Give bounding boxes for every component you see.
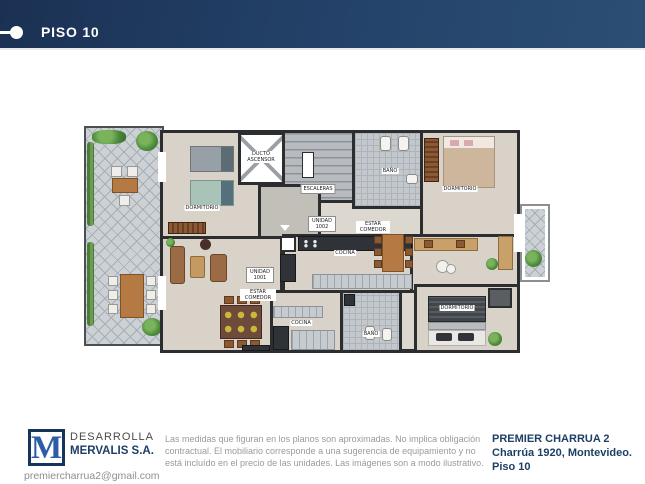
- terrace-chair: [111, 166, 122, 177]
- pillow: [464, 140, 473, 146]
- header-bar: PISO 10: [0, 0, 645, 50]
- terrace-chair: [146, 304, 156, 314]
- developer-name: DESARROLLA MERVALIS S.A.: [70, 431, 154, 457]
- bed-single: [190, 180, 234, 206]
- balcony: [520, 204, 550, 282]
- header-dot-icon: [10, 26, 23, 39]
- property-address: Charrúa 1920, Montevideo.: [492, 446, 632, 460]
- kitchen-counter: [273, 306, 323, 318]
- plant: [92, 130, 126, 144]
- pillow: [458, 333, 474, 341]
- sofa: [210, 254, 227, 282]
- label-ducto-ascensor: DUCTO ASCENSOR: [244, 151, 278, 163]
- stove-burners: [302, 239, 320, 248]
- label-dormitorio-1002: DORMITORIO: [185, 205, 220, 211]
- kitchen-island: [312, 274, 412, 289]
- terrace-table-small: [112, 178, 138, 193]
- armchair: [190, 256, 205, 278]
- terrace-chair: [108, 290, 118, 300]
- entry-arrow: [280, 225, 290, 231]
- chair: [405, 236, 413, 244]
- terrace-chair: [146, 276, 156, 286]
- chair: [224, 296, 234, 304]
- sofa: [170, 246, 185, 284]
- terrace-door-opening: [158, 276, 166, 310]
- label-unidad-1002: UNIDAD 1002: [308, 216, 336, 232]
- developer-line2: MERVALIS S.A.: [70, 445, 154, 457]
- desk-item: [456, 240, 465, 248]
- coffee-table: [200, 239, 211, 250]
- label-bano-bottom: BAÑO: [363, 331, 380, 337]
- plant: [488, 332, 502, 346]
- stove: [273, 326, 289, 350]
- chair: [374, 236, 382, 244]
- hedge: [87, 242, 94, 326]
- terrace-chair: [108, 276, 118, 286]
- plant: [486, 258, 498, 270]
- chair: [405, 260, 413, 268]
- page: PISO 10: [0, 0, 645, 484]
- label-dormitorio-top-right: DORMITORIO: [443, 186, 478, 192]
- cabinet: [498, 236, 513, 270]
- plant: [136, 131, 158, 151]
- hedge: [87, 142, 94, 226]
- pillow: [450, 140, 459, 146]
- footer: M DESARROLLA MERVALIS S.A. premiercharru…: [0, 415, 645, 484]
- fridge: [280, 254, 296, 282]
- terrace-chair: [127, 166, 138, 177]
- floor-plan: DORMITORIO DUCTO ASCENSOR ESCALERAS BAÑO…: [84, 126, 550, 354]
- chair: [405, 248, 413, 256]
- bidet: [382, 328, 392, 341]
- terrace-door-opening: [158, 152, 166, 182]
- tv-cabinet: [242, 345, 270, 351]
- label-estar-comedor-1002: ESTAR COMEDOR: [356, 221, 390, 233]
- property-name: PREMIER CHARRUA 2: [492, 432, 632, 446]
- round-stool: [446, 264, 456, 274]
- label-bano-top: BAÑO: [382, 168, 399, 174]
- plant: [142, 318, 162, 336]
- stairs-landing: [302, 152, 314, 178]
- label-cocina-1002: COCINA: [334, 250, 356, 256]
- dining-table-1001: [220, 305, 262, 339]
- page-title: PISO 10: [41, 24, 100, 40]
- bed-single: [190, 146, 234, 172]
- pillow: [436, 333, 452, 341]
- contact-email: premiercharrua2@gmail.com: [24, 470, 160, 482]
- wardrobe: [168, 222, 206, 234]
- property-floor: Piso 10: [492, 460, 632, 474]
- label-dormitorio-1001: DORMITORIO: [440, 305, 475, 311]
- chair: [224, 340, 234, 348]
- mervalis-logo: M: [28, 429, 65, 466]
- label-cocina-1001: COCINA: [290, 320, 312, 326]
- dining-table-1002: [382, 234, 404, 272]
- label-escaleras: ESCALERAS: [300, 184, 335, 194]
- disclaimer-text: Las medidas que figuran en los planos so…: [165, 433, 485, 469]
- terrace-chair: [146, 290, 156, 300]
- chair: [374, 248, 382, 256]
- terrace-chair: [119, 195, 130, 206]
- bed-middle: [428, 322, 486, 330]
- chair: [374, 260, 382, 268]
- desk-item: [424, 240, 433, 248]
- sink: [406, 174, 418, 184]
- balcony-door-opening: [514, 214, 522, 252]
- terrace-table-large: [120, 274, 144, 318]
- toilet: [380, 136, 391, 151]
- label-estar-comedor-1001: ESTAR COMEDOR: [240, 289, 276, 301]
- label-unidad-1001: UNIDAD 1001: [246, 267, 274, 283]
- property-info: PREMIER CHARRUA 2 Charrúa 1920, Montevid…: [492, 432, 632, 474]
- plant: [525, 250, 542, 267]
- kitchen-counter: [291, 330, 335, 350]
- duct-box: [280, 236, 296, 252]
- closet: [488, 288, 512, 308]
- wardrobe: [424, 138, 439, 182]
- terrace-chair: [108, 304, 118, 314]
- bidet: [398, 136, 409, 151]
- washer: [344, 294, 355, 306]
- developer-line1: DESARROLLA: [70, 431, 154, 443]
